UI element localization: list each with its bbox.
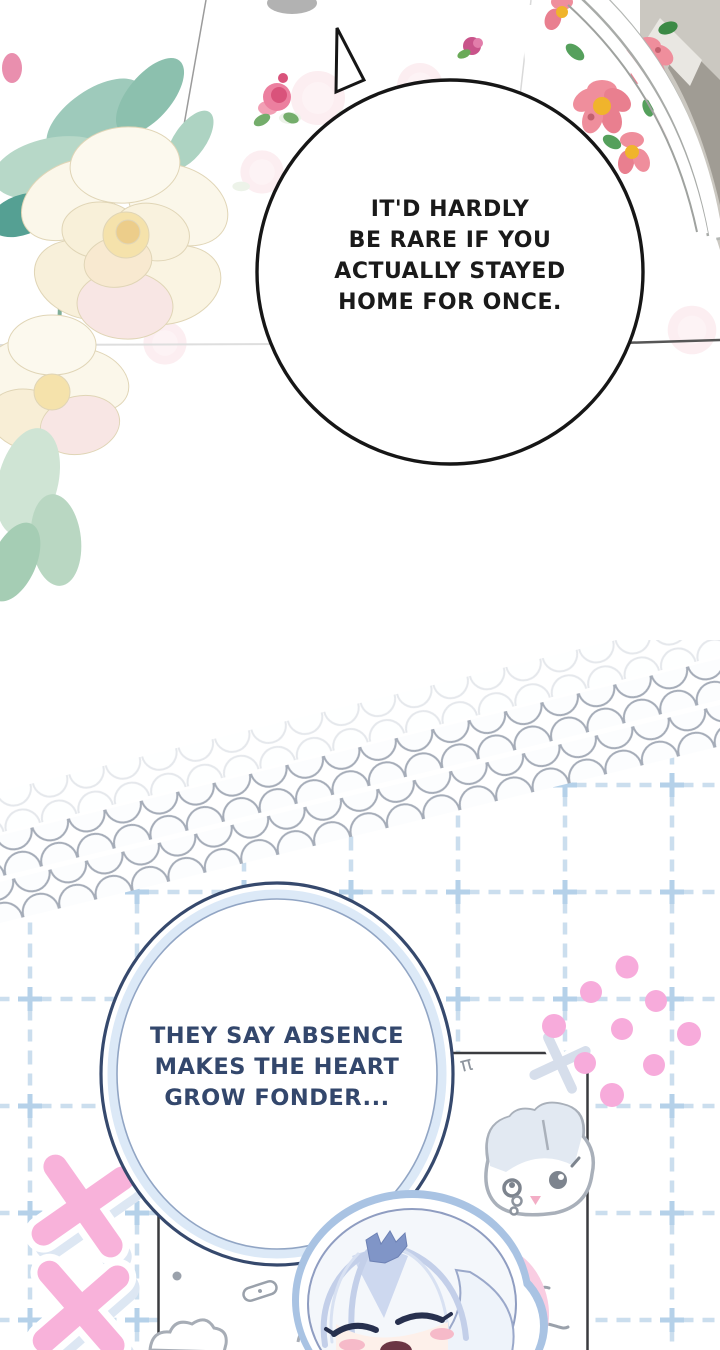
bubble-line: MAKES THE HEART: [77, 1052, 477, 1083]
bubble-line: BE RARE IF YOU: [250, 225, 650, 256]
bunny-doodle: [486, 1103, 593, 1214]
speech-bubble-2-text: THEY SAY ABSENCE MAKES THE HEART GROW FO…: [77, 1021, 477, 1114]
top-scene: [0, 0, 720, 640]
blush: [430, 1328, 454, 1340]
webtoon-page: IT'D HARDLY BE RARE IF YOU ACTUALLY STAY…: [0, 0, 720, 1350]
white-rose-bouquet: [0, 47, 241, 610]
bubble-line: THEY SAY ABSENCE: [77, 1021, 477, 1052]
bubble-line: ACTUALLY STAYED: [250, 256, 650, 287]
background-object: [267, 0, 317, 14]
magenta-rose-accent: [456, 37, 483, 61]
dot-doodle: [173, 1272, 182, 1281]
bubble-line: IT'D HARDLY: [250, 194, 650, 225]
speech-bubble-1-text: IT'D HARDLY BE RARE IF YOU ACTUALLY STAY…: [250, 194, 650, 318]
bottom-scene: π: [0, 640, 720, 1350]
bubble-line: GROW FONDER...: [77, 1083, 477, 1114]
bubble-line: HOME FOR ONCE.: [250, 287, 650, 318]
